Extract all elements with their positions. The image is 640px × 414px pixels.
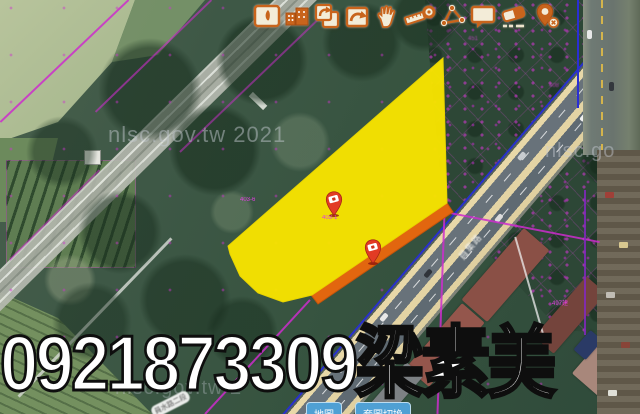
layer-toggle-button[interactable]: 套圖切換 — [355, 402, 411, 414]
highlighted-parcel[interactable] — [228, 58, 447, 302]
copy-layers-icon[interactable] — [313, 2, 341, 30]
parcel-number: 403-1 — [322, 215, 337, 221]
pan-hand-icon[interactable] — [373, 2, 401, 30]
map-pin[interactable] — [325, 191, 343, 216]
map-button[interactable]: 地圖 — [306, 402, 342, 414]
parcel-number: 497建 — [552, 298, 568, 307]
map-canvas[interactable]: 403-6 403-1 497建 451 408 nlsc.gov.tw 202… — [0, 0, 640, 414]
parcel-number: 451 — [468, 36, 478, 42]
map-pin[interactable] — [364, 239, 382, 264]
annotation-label-icon[interactable] — [469, 2, 497, 30]
ad-overlay-text: 0921873309梁素美 — [0, 324, 581, 402]
parcel-number: 403-6 — [240, 197, 255, 203]
buildings-3d-icon[interactable] — [283, 2, 311, 30]
measure-distance-icon[interactable] — [403, 2, 437, 30]
eraser-icon[interactable] — [499, 2, 532, 30]
clear-markers-icon[interactable] — [534, 2, 559, 30]
watermark-right: nlsc.go — [545, 140, 615, 163]
watermark-center: nlsc.gov.tw 2021 — [108, 122, 286, 148]
parcel-number: 408 — [549, 83, 559, 89]
map-toolbar — [253, 2, 559, 30]
previous-view-icon[interactable] — [343, 2, 371, 30]
taiwan-map-icon[interactable] — [253, 2, 281, 30]
measure-area-icon[interactable] — [439, 2, 467, 30]
